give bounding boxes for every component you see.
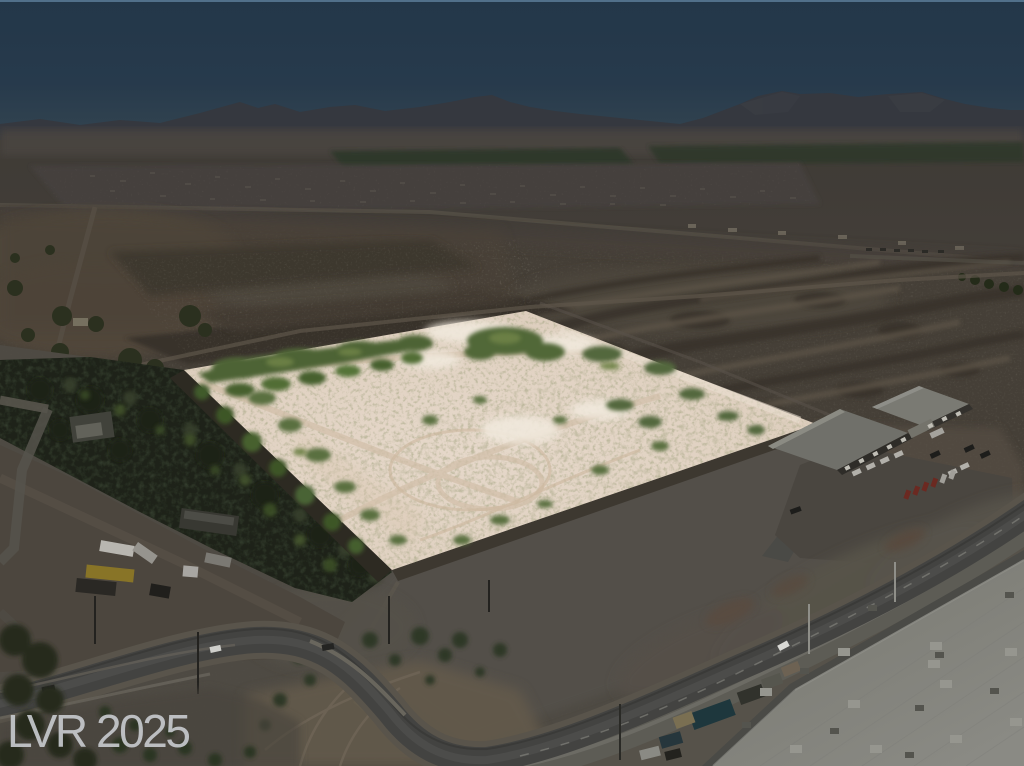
svg-text:LVR 2025: LVR 2025 — [7, 705, 191, 757]
